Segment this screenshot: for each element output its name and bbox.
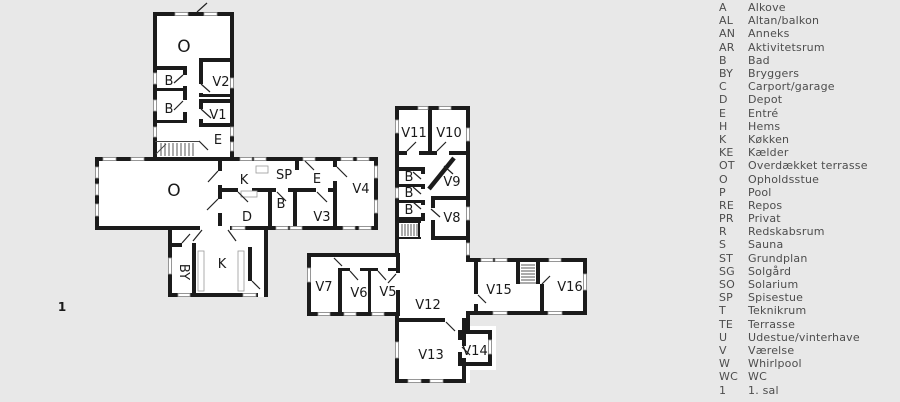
- legend-item-privat: PRPrivat: [719, 212, 897, 225]
- room-label-v14: V14: [462, 344, 487, 359]
- room-label-v9: V9: [443, 175, 460, 190]
- legend-item-grundplan: STGrundplan: [719, 252, 897, 265]
- legend-label: Terrasse: [748, 318, 795, 331]
- legend-item-sauna: SSauna: [719, 238, 897, 251]
- legend-label: Solgård: [748, 265, 791, 278]
- legend-abbr: RE: [719, 199, 748, 212]
- legend-abbr: KE: [719, 146, 748, 159]
- room-label-ground-o: O: [167, 181, 180, 201]
- legend-item-anneks: ANAnneks: [719, 27, 897, 40]
- legend-label: Redskabsrum: [748, 225, 825, 238]
- legend-item-wc: WCWC: [719, 370, 897, 383]
- legend-label: Udestue/vinterhave: [748, 331, 860, 344]
- legend-abbr: S: [719, 238, 748, 251]
- legend-label: Privat: [748, 212, 781, 225]
- legend-abbr: B: [719, 54, 748, 67]
- room-label-v8: V8: [443, 211, 460, 226]
- legend-abbr: T: [719, 304, 748, 317]
- legend-item-carport: CCarport/garage: [719, 80, 897, 93]
- legend-abbr: AN: [719, 27, 748, 40]
- legend-item-pool: PPool: [719, 186, 897, 199]
- room-label-v3: V3: [313, 210, 330, 225]
- floor-marker-1: 1: [58, 300, 66, 314]
- room-label-d: D: [242, 210, 252, 225]
- legend-abbr: E: [719, 107, 748, 120]
- legend-item-solarium: SOSolarium: [719, 278, 897, 291]
- legend-label: Aktivitetsrum: [748, 41, 825, 54]
- legend-label: Opholdsstue: [748, 173, 819, 186]
- room-label-v12: V12: [415, 298, 440, 313]
- room-label-v13: V13: [418, 348, 443, 363]
- room-label-wing-b2: B: [405, 186, 414, 201]
- legend-abbr: U: [719, 331, 748, 344]
- room-label-k2: K: [218, 257, 227, 272]
- room-label-v11: V11: [401, 126, 426, 141]
- legend-abbr: K: [719, 133, 748, 146]
- room-label-upper-b1: B: [165, 74, 174, 89]
- legend-label: WC: [748, 370, 767, 383]
- legend-label: Entré: [748, 107, 778, 120]
- legend-label: Solarium: [748, 278, 798, 291]
- legend-label: Bryggers: [748, 67, 799, 80]
- legend-label: 1. sal: [748, 384, 779, 397]
- legend-item-terrasse: TETerrasse: [719, 318, 897, 331]
- legend-label: Teknikrum: [748, 304, 806, 317]
- legend-abbr: A: [719, 1, 748, 14]
- room-label-v7: V7: [315, 280, 332, 295]
- room-label-k: K: [240, 173, 249, 188]
- legend-item-spisestue: SPSpisestue: [719, 291, 897, 304]
- room-label-v1: V1: [209, 108, 226, 123]
- room-label-upper-b2: B: [165, 102, 174, 117]
- room-label-v10: V10: [436, 126, 461, 141]
- legend-label: Pool: [748, 186, 772, 199]
- room-label-sp: SP: [276, 168, 292, 183]
- legend-item-repos: RERepos: [719, 199, 897, 212]
- legend-item-opholdsstue: OOpholdsstue: [719, 172, 897, 185]
- legend-abbr: D: [719, 93, 748, 106]
- legend-label: Anneks: [748, 27, 790, 40]
- legend-abbr: O: [719, 173, 748, 186]
- room-label-v6: V6: [350, 286, 367, 301]
- legend: AAlkove ALAltan/balkon ANAnneks ARAktivi…: [719, 1, 897, 397]
- legend-label: Whirlpool: [748, 357, 802, 370]
- legend-label: Depot: [748, 93, 782, 106]
- legend-abbr: V: [719, 344, 748, 357]
- legend-label: Carport/garage: [748, 80, 835, 93]
- legend-label: Alkove: [748, 1, 786, 14]
- legend-item-overdaekket-terrasse: OTOverdækket terrasse: [719, 159, 897, 172]
- legend-abbr: TE: [719, 318, 748, 331]
- legend-abbr: P: [719, 186, 748, 199]
- legend-abbr: 1: [719, 384, 748, 397]
- legend-label: Bad: [748, 54, 770, 67]
- legend-item-teknikrum: TTeknikrum: [719, 304, 897, 317]
- legend-abbr: OT: [719, 159, 748, 172]
- legend-abbr: SG: [719, 265, 748, 278]
- legend-item-solgard: SGSolgård: [719, 265, 897, 278]
- room-label-v2: V2: [212, 75, 229, 90]
- legend-abbr: C: [719, 80, 748, 93]
- legend-item-bad: BBad: [719, 54, 897, 67]
- legend-label: Grundplan: [748, 252, 808, 265]
- legend-abbr: SO: [719, 278, 748, 291]
- legend-item-aktivitetsrum: ARAktivitetsrum: [719, 41, 897, 54]
- legend-label: Værelse: [748, 344, 794, 357]
- legend-label: Overdækket terrasse: [748, 159, 868, 172]
- legend-label: Repos: [748, 199, 782, 212]
- legend-label: Altan/balkon: [748, 14, 819, 27]
- legend-label: Køkken: [748, 133, 789, 146]
- legend-abbr: R: [719, 225, 748, 238]
- legend-item-vaerelse: VVærelse: [719, 344, 897, 357]
- legend-abbr: WC: [719, 370, 748, 383]
- legend-item-1-sal: 11. sal: [719, 383, 897, 396]
- room-label-by: BY: [176, 264, 191, 280]
- room-label-v5: V5: [379, 285, 396, 300]
- legend-item-udestue: UUdestue/vinterhave: [719, 331, 897, 344]
- room-label-v15: V15: [486, 283, 511, 298]
- legend-item-redskabsrum: RRedskabsrum: [719, 225, 897, 238]
- room-label-ground-e: E: [313, 172, 321, 187]
- legend-abbr: W: [719, 357, 748, 370]
- room-label-upper-o: O: [177, 37, 190, 57]
- legend-item-depot: DDepot: [719, 93, 897, 106]
- legend-item-entre: EEntré: [719, 107, 897, 120]
- room-label-wing-b1: B: [405, 170, 414, 185]
- legend-item-alkove: AAlkove: [719, 1, 897, 14]
- legend-abbr: ST: [719, 252, 748, 265]
- floorplan-page: O B B V2 V1 E O K SP E V4 B D V3 BY K V1…: [0, 0, 900, 402]
- legend-label: Sauna: [748, 238, 783, 251]
- legend-item-altan: ALAltan/balkon: [719, 14, 897, 27]
- legend-abbr: AL: [719, 14, 748, 27]
- legend-abbr: BY: [719, 67, 748, 80]
- legend-label: Kælder: [748, 146, 789, 159]
- legend-label: Spisestue: [748, 291, 803, 304]
- legend-abbr: SP: [719, 291, 748, 304]
- legend-item-kaelder: KEKælder: [719, 146, 897, 159]
- legend-item-kokken: KKøkken: [719, 133, 897, 146]
- room-label-v4: V4: [352, 182, 369, 197]
- room-label-upper-e: E: [214, 133, 222, 148]
- room-label-wing-b3: B: [405, 203, 414, 218]
- legend-item-whirlpool: WWhirlpool: [719, 357, 897, 370]
- legend-abbr: AR: [719, 41, 748, 54]
- room-label-ground-b: B: [277, 197, 286, 212]
- legend-label: Hems: [748, 120, 780, 133]
- legend-item-bryggers: BYBryggers: [719, 67, 897, 80]
- legend-item-hems: HHems: [719, 120, 897, 133]
- legend-abbr: H: [719, 120, 748, 133]
- room-label-v16: V16: [557, 280, 582, 295]
- legend-abbr: PR: [719, 212, 748, 225]
